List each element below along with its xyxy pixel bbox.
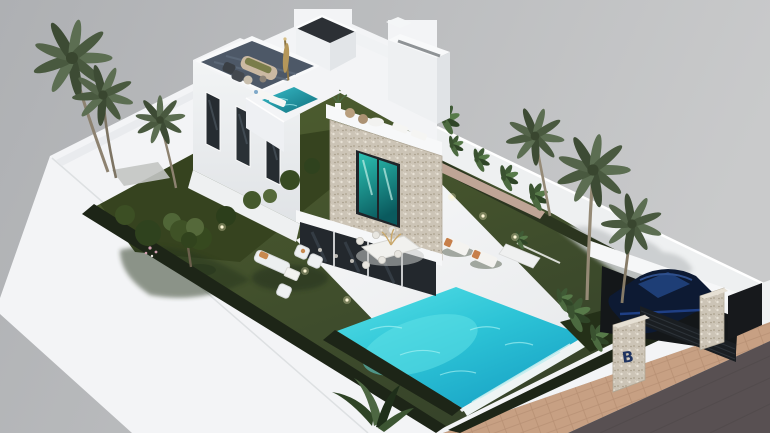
wicker-chair-2	[358, 114, 368, 124]
gate-pillar-logo: B	[613, 315, 650, 392]
parasol-finial	[283, 37, 286, 40]
lounger-pillow-blue	[254, 90, 258, 94]
wicker-chair-1	[345, 108, 355, 118]
roof-pouf	[244, 76, 253, 85]
rr-right-face	[437, 52, 450, 124]
right-wall-return	[762, 280, 770, 325]
gate-pillar-2	[700, 288, 728, 350]
roof-side-table	[260, 76, 267, 83]
terrace-table	[368, 118, 384, 127]
villa-render: B	[0, 0, 770, 433]
chair-pillow	[301, 249, 305, 253]
window-1	[206, 92, 220, 151]
render-viewport: B	[0, 0, 770, 433]
tree-canopy-3	[181, 232, 197, 248]
plant-pot	[335, 103, 341, 109]
